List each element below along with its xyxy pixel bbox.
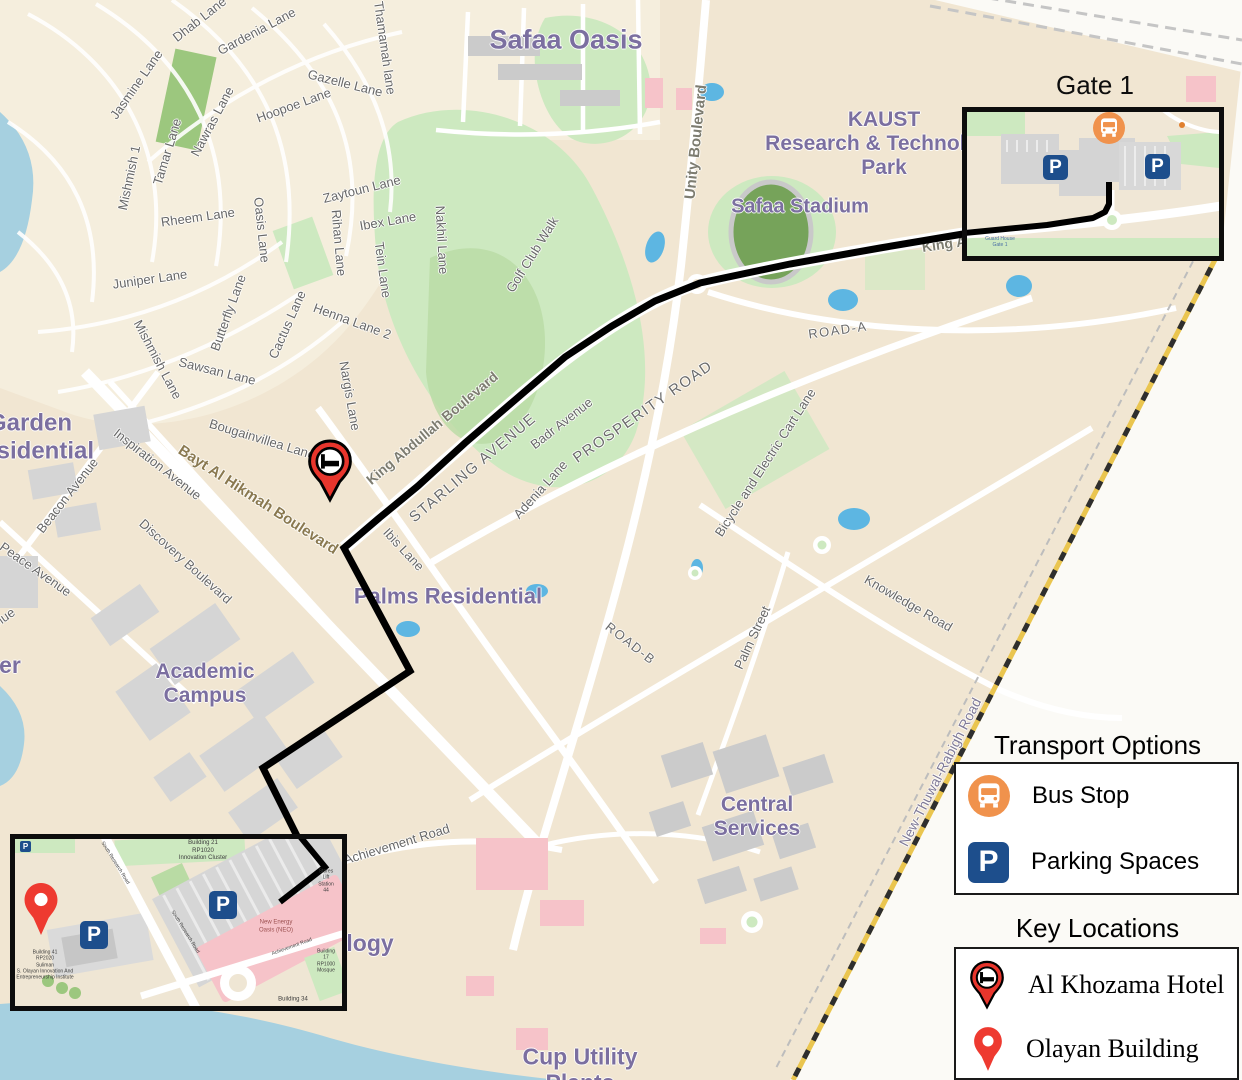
hotel-pin-icon [306, 438, 354, 504]
location-pin-icon [972, 1025, 1004, 1073]
map-label: Oasis Lane [250, 197, 272, 264]
legend-row-olayan: Olayan Building [968, 1023, 1199, 1075]
map-label: ROAD-B [602, 620, 658, 668]
olayan-building-label: Olayan Building [1026, 1034, 1199, 1064]
map-label: Cactus Lane [266, 289, 309, 362]
hotel-pin-icon [968, 960, 1006, 1010]
map-label: South Research Road [169, 909, 200, 954]
olayan-labels: Building 21 RP1020 Innovation ClusterSto… [15, 839, 342, 1006]
map-label: Mishmish 1 [116, 144, 144, 211]
location-pin-icon [22, 881, 60, 937]
olayan-inset: Building 21 RP1020 Innovation ClusterSto… [10, 834, 347, 1011]
map-label: Safaa Oasis [489, 24, 642, 55]
map-label: Rheem Lane [160, 205, 236, 230]
legend-row-hotel: Al Khozama Hotel [968, 959, 1224, 1011]
map-label: Bougainvillea Lane [207, 417, 316, 463]
bus-stop-label: Bus Stop [1032, 782, 1129, 810]
map-label: Building 17 RP1000 Mosque [317, 949, 335, 974]
map-label: Tamar Lane [151, 117, 185, 187]
map-label: Discovery Boulevard [136, 517, 235, 608]
map-label: Tein Lane [371, 241, 394, 299]
map-label: Nawras Lane [188, 85, 237, 160]
map-label: Peace Avenue [0, 540, 74, 600]
parking-icon: P [20, 841, 31, 852]
map-label: Building 21 RP1020 Innovation Cluster [179, 840, 227, 863]
map-label: Garden Residential [0, 409, 94, 464]
bus-icon [1093, 112, 1125, 144]
parking-spaces-label: Parking Spaces [1031, 848, 1199, 876]
map-label: King A [921, 233, 967, 255]
parking-icon: P [209, 891, 237, 919]
map-label: Ibex Lane [359, 210, 418, 235]
map-label: Adenia Lane [511, 458, 571, 522]
map-label: King Abdullah Boulevard [363, 368, 501, 487]
gate1-inset-title: Gate 1 [965, 70, 1225, 101]
key-locations-legend: Al Khozama Hotel Olayan Building [954, 947, 1239, 1080]
map-label: Cup Utility Plants [523, 1044, 638, 1080]
map-label: South Research Road [99, 840, 130, 885]
map-label: Palm Street [732, 604, 774, 672]
map-label: Gazelle Lane [306, 67, 384, 100]
transport-legend: Bus Stop P Parking Spaces [954, 762, 1239, 895]
map-label: Inspiration Avenue [110, 426, 203, 503]
bus-icon [968, 775, 1010, 817]
map-label: Dhab Lane [170, 0, 229, 45]
map-label: Ibis Lane [380, 526, 427, 575]
legend-row-parking: P Parking Spaces [968, 836, 1199, 888]
map-label: Achievement Road [271, 937, 313, 957]
map-label: Golf Club Walk [504, 214, 562, 295]
map-label: Thamamah lane [370, 0, 398, 95]
parking-icon: P [80, 921, 108, 949]
map-label: Safaa Stadium [731, 196, 869, 219]
map-label: Sawsan Lane [177, 355, 257, 389]
transport-options-title: Transport Options [955, 730, 1240, 761]
key-locations-title: Key Locations [955, 913, 1240, 944]
legend-row-bus-stop: Bus Stop [968, 770, 1129, 822]
campus-map: Safaa OasisKAUST Research & Technology P… [0, 0, 1242, 1080]
map-label: Jasmine Lane [108, 48, 167, 123]
gate1-inset: Guard House Gate 1 P P [962, 107, 1224, 261]
map-label: Unity Boulevard [681, 84, 710, 200]
map-label: PROSPERITY ROAD [570, 357, 716, 467]
map-label: Zaytoun Lane [322, 173, 403, 207]
map-label: Hoopoe Lane [255, 86, 333, 127]
map-label: Gardenia Lane [216, 5, 299, 59]
parking-icon: P [1043, 155, 1068, 180]
map-label: Stores Lift Station 44 [318, 869, 334, 894]
map-label: Beacon Avenue [34, 456, 102, 537]
map-label: Henna Lane 2 [311, 301, 393, 343]
map-label: Juniper Lane [112, 267, 189, 292]
map-label: New Energy Oasis (NEO) [259, 920, 293, 935]
map-label: Badr Avenue [528, 395, 596, 452]
map-label: Building 34 [278, 996, 308, 1004]
map-label: Nargis Lane [336, 360, 363, 432]
map-label: Bicycle and Electric Cart Lane [713, 386, 820, 540]
map-label: Academic Campus [155, 660, 254, 708]
map-label: Rihan Lane [328, 209, 349, 277]
map-label: Building 41 RP2020 Suliman S. Olayan Inn… [16, 949, 73, 980]
map-label: Butterfly Lane [208, 273, 249, 353]
map-label: Knowledge Road [861, 573, 954, 635]
map-label: er [0, 652, 21, 678]
al-khozama-hotel-label: Al Khozama Hotel [1028, 970, 1224, 1000]
map-label: Central Services [714, 793, 800, 841]
map-label: Avenue [0, 605, 18, 642]
map-label: Nakhil Lane [432, 205, 451, 274]
map-label: Guard House Gate 1 [985, 236, 1015, 249]
parking-icon: P [968, 842, 1009, 883]
map-label: STARLING AVENUE [406, 410, 540, 526]
map-label: ROAD-A [807, 319, 868, 342]
parking-icon: P [1145, 154, 1170, 179]
map-label: Mishmish Lane [130, 318, 184, 402]
map-label: Palms Residential [354, 583, 542, 608]
map-label: Achievement Road [342, 822, 451, 868]
